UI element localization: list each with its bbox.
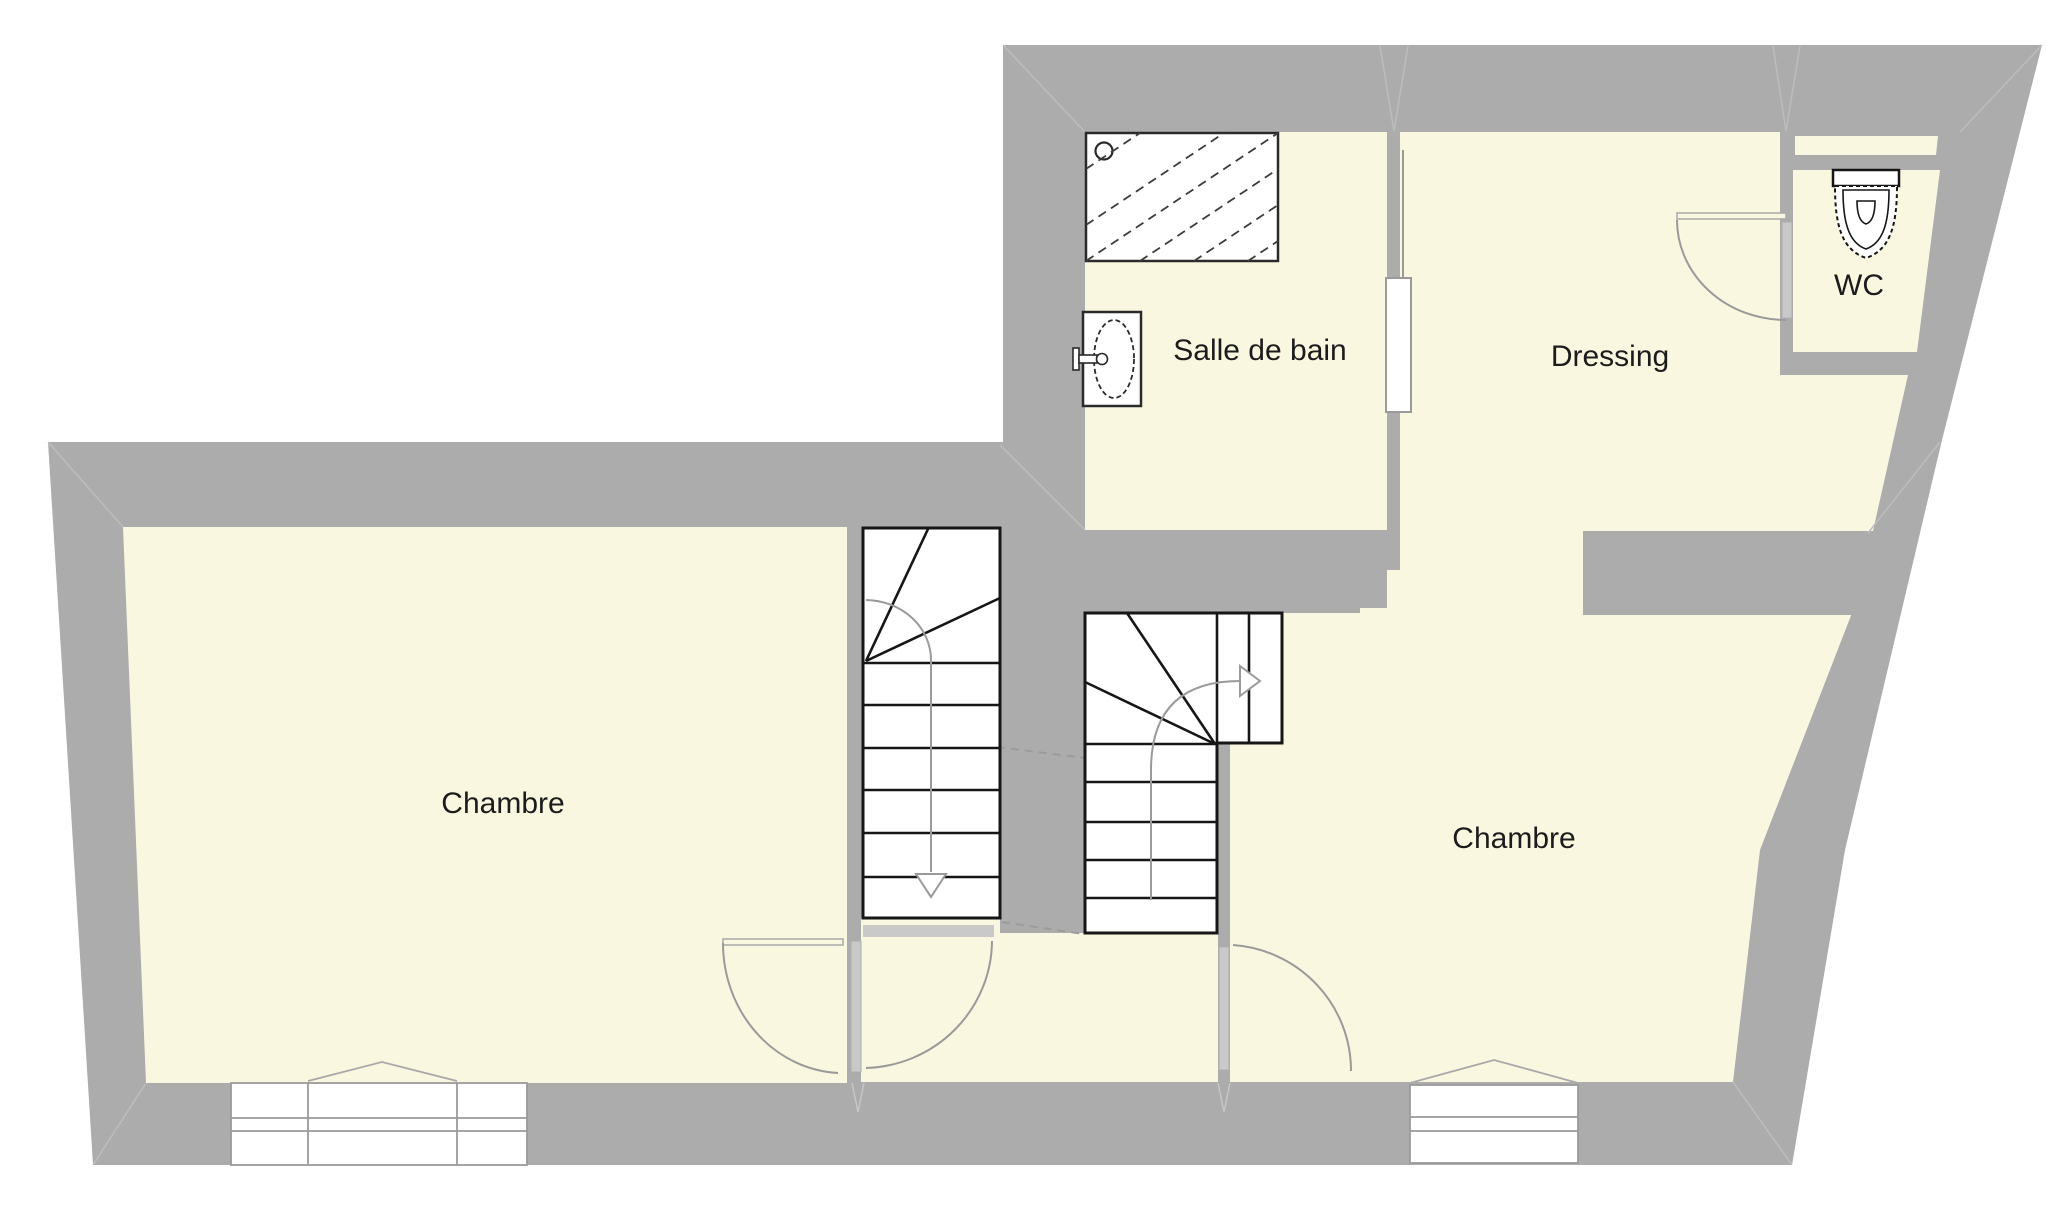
wall-sdb-bottom [1085,530,1387,608]
wall-wc-top [1793,155,1938,170]
room-label-salle-de-bain: Salle de bain [1173,334,1346,367]
sliding-door-panel [1386,278,1411,412]
door-leaf-open [1677,213,1786,219]
threshold-hallway [863,925,994,937]
room-label-chambre-left: Chambre [441,787,564,820]
wall-chambre-left-hall [847,527,861,941]
wall-wc-bottom [1780,352,1917,375]
wall-sdb-dressing-lower [1387,412,1400,570]
wall-stair-gap [1000,505,1085,933]
shower-icon [1086,133,1278,261]
door-opening-bar [1219,947,1229,1070]
room-label-chambre-right: Chambre [1452,822,1575,855]
door-opening-bar [1782,222,1792,318]
room-label-dressing: Dressing [1551,340,1669,373]
staircase-left [863,528,1000,918]
door-leaf-open [723,939,843,945]
floor-plan-canvas: Chambre Salle de bain Dressing WC Chambr… [0,0,2070,1210]
room-label-wc: WC [1834,269,1884,302]
sink-icon [1073,312,1141,406]
wall-sdb-dressing-upper [1387,132,1400,278]
wall-dressing-chambre [1583,531,1873,615]
wall-hall-chambre-right [1218,743,1230,947]
door-opening-bar [851,941,861,1072]
room-floor-wc-upper-sliver [1795,136,1938,155]
